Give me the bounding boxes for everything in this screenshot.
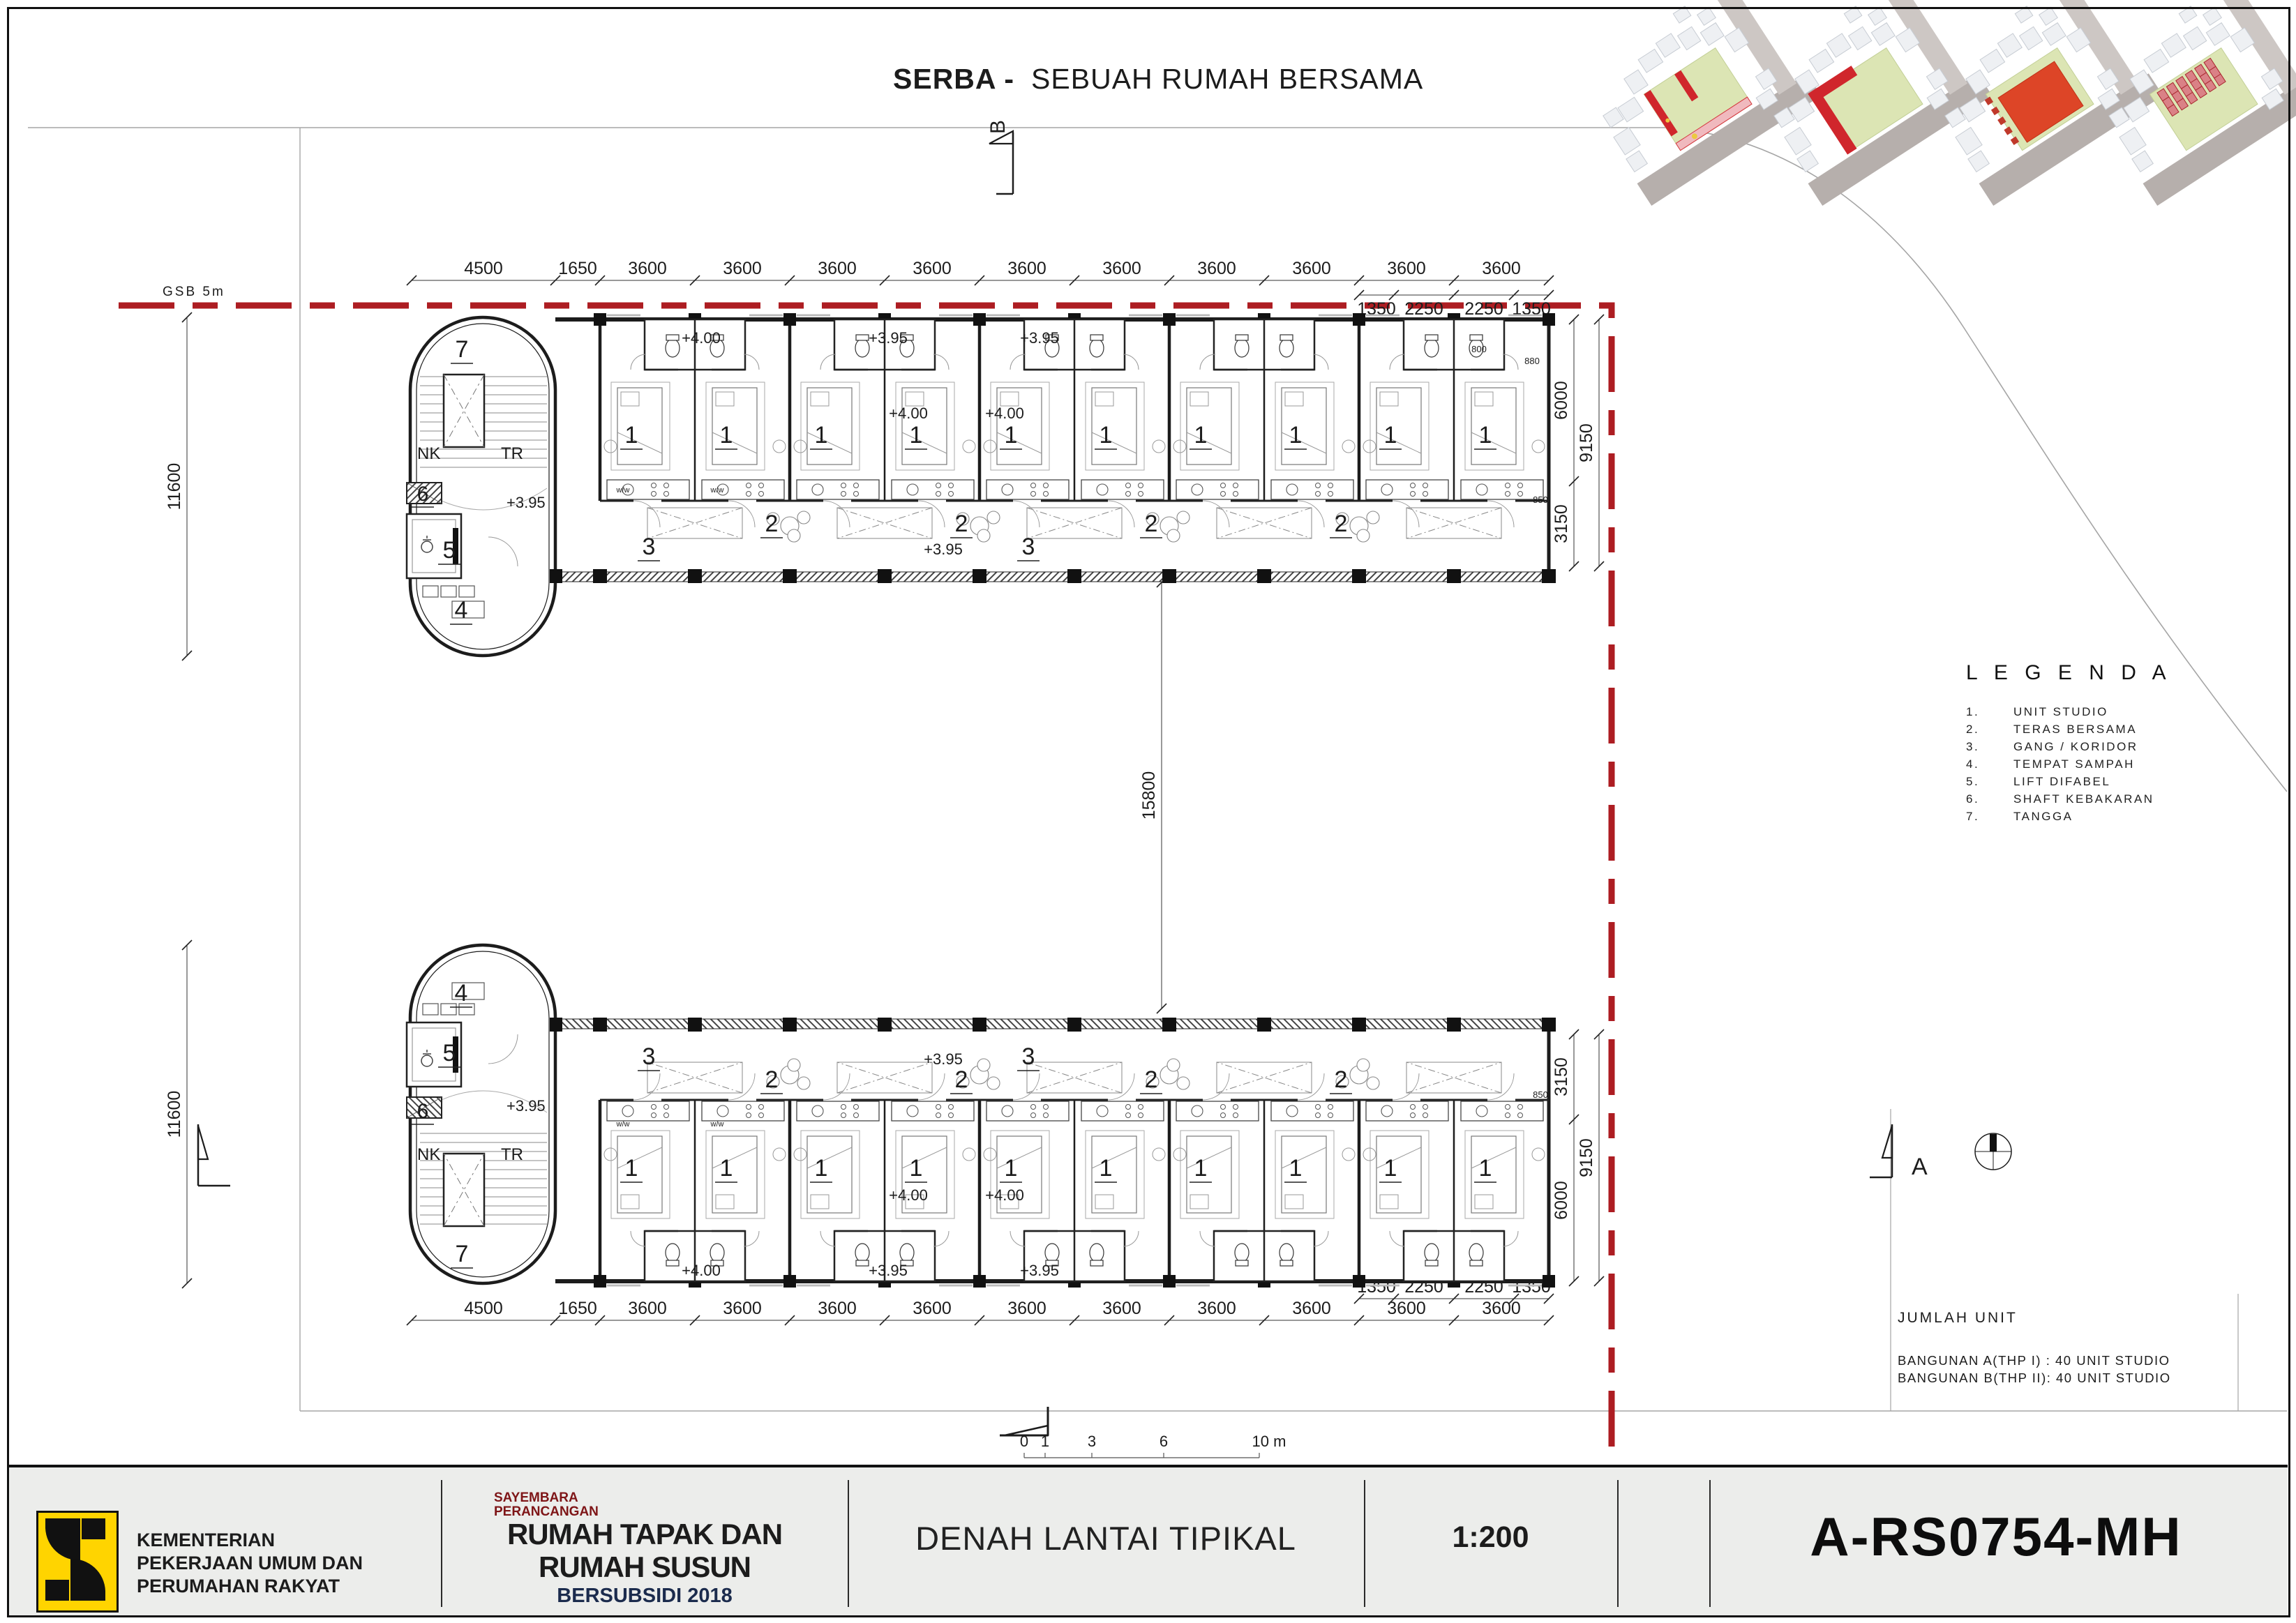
drawing-sheet: GSB 5mGSB 8mBA45001650360036003600360036…: [0, 0, 2296, 1623]
sheet-frame: [7, 7, 2290, 1617]
